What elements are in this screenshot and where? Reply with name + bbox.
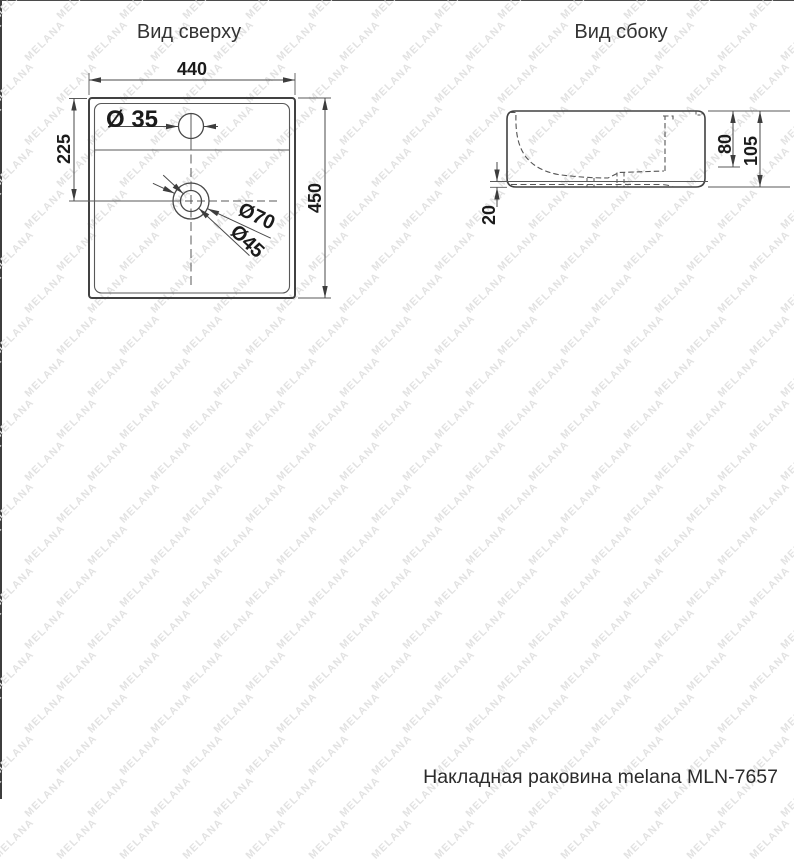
watermark-text: MELANA [306,816,351,861]
technical-drawing: Ø 35 440 225 450 Ø70 Ø45 20 80 105 [2,1,794,800]
basin-contour-hidden [510,113,664,179]
watermark-text: MELANA [558,816,603,861]
sink-outline-side-view [507,111,705,187]
watermark-text: MELANA [621,816,666,861]
dim-total-height-label: 105 [741,136,761,166]
dim-width-label: 440 [177,59,207,79]
faucet-hole-label: Ø 35 [106,106,158,133]
dim-base-label: 20 [479,205,499,225]
drain-inner-dim-leader-upper [163,175,183,194]
drain-outer-dim-leader-upper [153,183,175,193]
dim-depth-label: 450 [305,183,325,213]
watermark-text: MELANA [369,816,414,861]
watermark-text: MELANA [432,816,477,861]
footer-caption: Накладная раковина melana MLN-7657 [423,766,778,789]
dim-basin-label: 80 [715,134,735,154]
watermark-text: MELANA [180,816,225,861]
overflow-channel-hidden [663,116,673,171]
watermark-text: MELANA [0,816,37,861]
watermark-text: MELANA [54,816,99,861]
watermark-text: MELANA [495,816,540,861]
dim-offset-label: 225 [54,134,74,164]
watermark-text: MELANA [747,816,792,861]
watermark-text: MELANA [684,816,729,861]
watermark-text: MELANA [243,816,288,861]
watermark-text: MELANA [117,816,162,861]
top-view-title: Вид сверху [137,22,241,42]
side-view-title: Вид сбоку [574,22,667,42]
